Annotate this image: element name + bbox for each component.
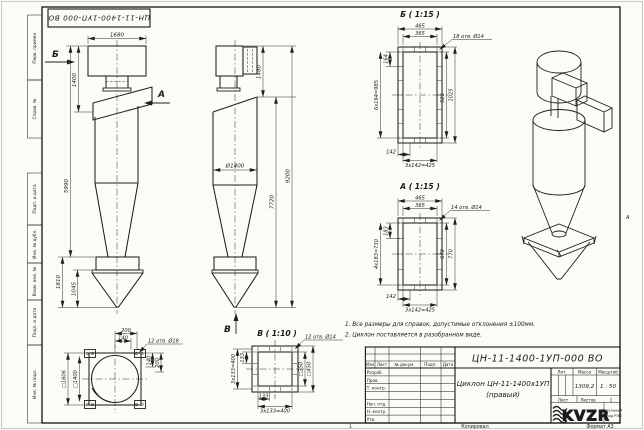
view-a-142: 142 bbox=[386, 294, 396, 300]
section-label-a: А bbox=[157, 90, 165, 100]
dim-1480: 1480 bbox=[257, 64, 263, 79]
drawing-frame: Перв. примен. Справ. № Подп. и дата Инв.… bbox=[2, 2, 643, 430]
view-a-title: А ( 1:15 ) bbox=[399, 182, 440, 191]
col-data: Дата bbox=[443, 362, 454, 367]
view-b-detail: Б ( 1:15 ) 465 365 18 отв. Ø14 164 6х bbox=[374, 10, 492, 169]
dim-sq-1606: □1606 bbox=[62, 369, 68, 388]
view-b-title: Б ( 1:15 ) bbox=[400, 10, 440, 19]
view-v-pitch-bottom: 3х133=400 bbox=[260, 409, 290, 415]
bottom-copied-label: Копировал bbox=[461, 424, 488, 430]
lit-label: Лит. bbox=[557, 370, 566, 375]
row-razrab: Разраб. bbox=[367, 370, 383, 375]
note-line-2: 2. Циклон поставляется в разобранном вид… bbox=[345, 333, 482, 339]
logo-subtext-1: Котельный bbox=[602, 409, 622, 413]
row-utv: Утв. bbox=[367, 417, 376, 422]
company-logo: KVZR Котельный завод РЭП bbox=[553, 407, 622, 425]
bottom-format-label: Формат А3 bbox=[586, 424, 613, 430]
isometric-view bbox=[522, 51, 612, 279]
top-stamp: ЦН-11-1400-1УП-000 ВО bbox=[48, 9, 150, 27]
view-b-dimensions: 465 365 18 отв. Ø14 164 6х164=985 925 10… bbox=[374, 24, 492, 170]
mass-value: 1309,2 bbox=[575, 384, 595, 390]
view-b-925: 925 bbox=[440, 93, 446, 103]
view-b-pitch-left: 6х164=985 bbox=[374, 80, 380, 110]
dim-dia-1400: Ø1400 bbox=[225, 163, 245, 170]
view-v-detail: В ( 1:10 ) 12 отв. Ø14 133 3х133=400 133… bbox=[231, 329, 343, 415]
dim-7720: 7720 bbox=[270, 194, 276, 209]
view-v-sq450: □450 bbox=[307, 362, 313, 377]
front-view: 1680 1400 5990 1810 1045 Б А bbox=[45, 33, 170, 315]
margin-column: Перв. примен. Справ. № Подп. и дата Инв.… bbox=[28, 15, 43, 423]
view-v-133-bottom: 133 bbox=[259, 394, 269, 400]
view-b-142: 142 bbox=[386, 150, 396, 156]
view-a-770: 770 bbox=[449, 249, 455, 259]
dim-1680: 1680 bbox=[110, 33, 125, 39]
view-b-holes: 18 отв. Ø14 bbox=[453, 33, 484, 40]
view-b-365: 365 bbox=[415, 31, 425, 37]
section-label-v: В bbox=[224, 325, 231, 335]
view-v-133-left: 133 bbox=[240, 353, 246, 363]
view-b-pitch-bottom: 3х142=425 bbox=[405, 163, 435, 169]
base-holes-label: 12 отв. Ø18 bbox=[148, 338, 180, 345]
row-nachotd: Нач. отд. bbox=[367, 401, 387, 406]
view-a-365: 365 bbox=[415, 203, 425, 209]
drawing-sheet: Перв. примен. Справ. № Подп. и дата Инв.… bbox=[0, 0, 644, 430]
margin-label-podp-data-2: Подп. и дата bbox=[32, 308, 38, 338]
product-title-1: Циклон ЦН-11-1400х1УП bbox=[457, 379, 550, 388]
view-a-detail: А ( 1:15 ) 465 365 14 отв. Ø14 183 4х bbox=[374, 182, 490, 314]
col-izm: Изм bbox=[366, 362, 374, 367]
dim-5990: 5990 bbox=[64, 178, 70, 193]
margin-label-podp-data-1: Подп. и дата bbox=[32, 184, 38, 214]
margin-label-inv-podl: Инв. № подл. bbox=[32, 369, 38, 399]
view-b-465: 465 bbox=[415, 24, 425, 30]
view-a-670: 670 bbox=[440, 249, 446, 259]
dim-1045: 1045 bbox=[72, 281, 78, 296]
base-view-dimensions: 200 140 12 отв. Ø18 □1606 □1400 140 200 bbox=[62, 328, 184, 405]
product-title-2: (правый) bbox=[486, 390, 520, 399]
view-v-pitch-left: 3х133=400 bbox=[231, 354, 237, 384]
view-a-pitch-bottom: 3х142=425 bbox=[405, 308, 435, 314]
title-block: ЦН-11-1400-1УП-000 ВО Изм Лист № докум. … bbox=[365, 347, 622, 425]
margin-label-inv-dubl: Инв. № дубл. bbox=[32, 229, 38, 258]
listov-label: Листов bbox=[580, 397, 596, 402]
doc-number: ЦН-11-1400-1УП-000 ВО bbox=[472, 354, 603, 365]
dim-1400: 1400 bbox=[72, 72, 78, 87]
view-a-183: 183 bbox=[384, 226, 390, 236]
view-b-164: 164 bbox=[384, 54, 390, 64]
margin-label-vzam-inv: Взам. инв. № bbox=[32, 266, 38, 296]
view-v-holes: 12 отв. Ø14 bbox=[305, 334, 336, 341]
list-label: Лист bbox=[558, 397, 569, 402]
dim-140-top: 140 bbox=[118, 336, 128, 342]
drawing-canvas: Перв. примен. Справ. № Подп. и дата Инв.… bbox=[0, 0, 644, 430]
logo-subtext-2: завод РЭП bbox=[603, 414, 622, 418]
dim-9200: 9200 bbox=[286, 168, 292, 183]
dim-200-right: 200 bbox=[155, 358, 161, 368]
section-arrow-v: В bbox=[224, 313, 239, 335]
view-a-465: 465 bbox=[415, 196, 425, 202]
side-view-dimensions: 1480 7720 9200 bbox=[236, 46, 296, 308]
section-arrow-a: А bbox=[144, 90, 170, 106]
zone-marker: А bbox=[625, 215, 630, 221]
view-a-holes: 14 отв. Ø14 bbox=[451, 204, 482, 211]
view-a-dimensions: 465 365 14 отв. Ø14 183 4х183=730 670 77… bbox=[374, 196, 490, 314]
dim-sq-1400: □1400 bbox=[73, 370, 79, 388]
dim-140-right: 140 bbox=[147, 356, 153, 366]
note-line-1: 1. Все размеры для справок, допустимые о… bbox=[345, 322, 535, 328]
col-doc: № докум. bbox=[394, 362, 414, 367]
col-list: Лист bbox=[377, 362, 388, 367]
top-stamp-number: ЦН-11-1400-1УП-000 ВО bbox=[48, 14, 150, 23]
view-a-pitch-left: 4х183=730 bbox=[374, 239, 380, 269]
view-v-title: В ( 1:10 ) bbox=[257, 329, 297, 338]
section-label-b: Б bbox=[52, 50, 59, 60]
notes: 1. Все размеры для справок, допустимые о… bbox=[345, 322, 535, 339]
row-nkontr: Н. контр. bbox=[367, 409, 387, 414]
dim-200-top: 200 bbox=[121, 328, 131, 334]
scale-label: Масштаб bbox=[598, 370, 618, 375]
mass-label: Масса bbox=[578, 370, 592, 375]
row-prov: Пров. bbox=[367, 378, 379, 383]
margin-label-perv-primen: Перв. примен. bbox=[32, 31, 38, 63]
margin-label-sprav-no: Справ. № bbox=[32, 98, 38, 119]
dim-1810: 1810 bbox=[56, 274, 62, 289]
base-bottom-view: 200 140 12 отв. Ø18 □1606 □1400 140 200 bbox=[62, 328, 184, 413]
col-podp: Подп. bbox=[424, 362, 436, 367]
view-b-1025: 1025 bbox=[449, 89, 455, 102]
row-tkontr: Т. контр. bbox=[366, 386, 386, 391]
scale-value: 1 : 50 bbox=[600, 384, 617, 390]
side-view: Ø1400 1480 7720 9200 В bbox=[212, 40, 296, 335]
bottom-sheet-num: 1 bbox=[349, 424, 352, 430]
view-v-sq350: □350 bbox=[299, 362, 305, 377]
front-view-dimensions: 1680 1400 5990 1810 1045 bbox=[56, 33, 146, 308]
listov-value: 1 bbox=[610, 397, 613, 402]
